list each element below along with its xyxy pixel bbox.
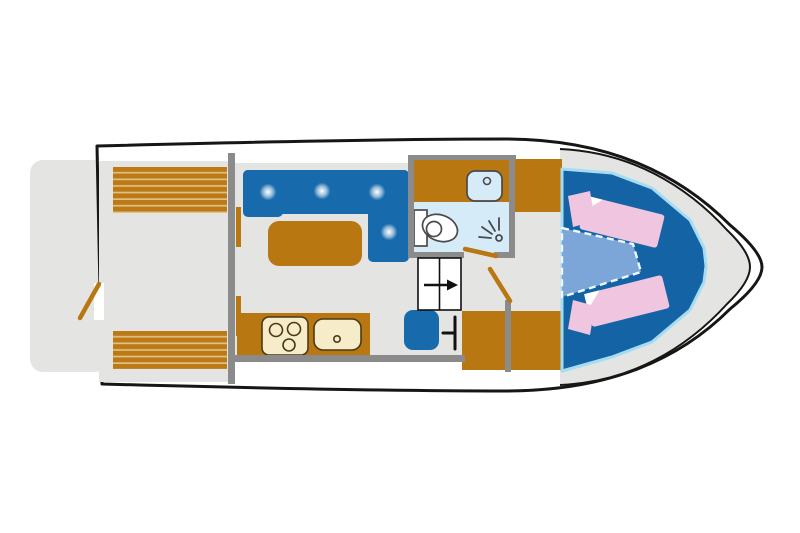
bathroom-sink: [467, 171, 502, 201]
bathroom-sink-drain: [484, 178, 491, 185]
bathroom: [414, 159, 509, 252]
aft-bulkhead-wall: [228, 153, 235, 384]
swim-platform: [30, 160, 108, 372]
helm-seat: [404, 310, 439, 350]
boat-floor-plan: [0, 0, 800, 533]
aft-bench-bottom: [113, 331, 227, 369]
galley-sink: [314, 319, 361, 350]
aft-bench-top: [113, 167, 227, 213]
boat-floor-plan-page: [0, 0, 800, 533]
stove-burner: [270, 324, 283, 337]
cabin-cabinet: [514, 159, 562, 212]
sofa-cushion-dot: [381, 224, 398, 241]
bathroom-wall-right: [509, 155, 515, 258]
sofa-cushion-dot: [260, 184, 277, 201]
sofa-cushion-dot: [314, 183, 331, 200]
galley-side-wall: [233, 355, 465, 362]
bathroom-wall-top: [408, 155, 516, 160]
wardrobe-divider-wall: [505, 300, 511, 372]
stove-burner: [288, 323, 301, 336]
bathroom-wall-left: [408, 155, 414, 258]
bathroom-wall-bottom-left: [408, 252, 464, 258]
companionway-stairs: [418, 258, 461, 310]
sliding-door-slat-bottom: [236, 296, 241, 336]
galley: [237, 313, 370, 357]
saloon-table: [268, 221, 362, 266]
sliding-door-slat-top: [236, 207, 241, 247]
stove-burner: [283, 339, 295, 351]
wardrobe: [462, 311, 562, 370]
sofa-cushion-dot: [369, 184, 386, 201]
